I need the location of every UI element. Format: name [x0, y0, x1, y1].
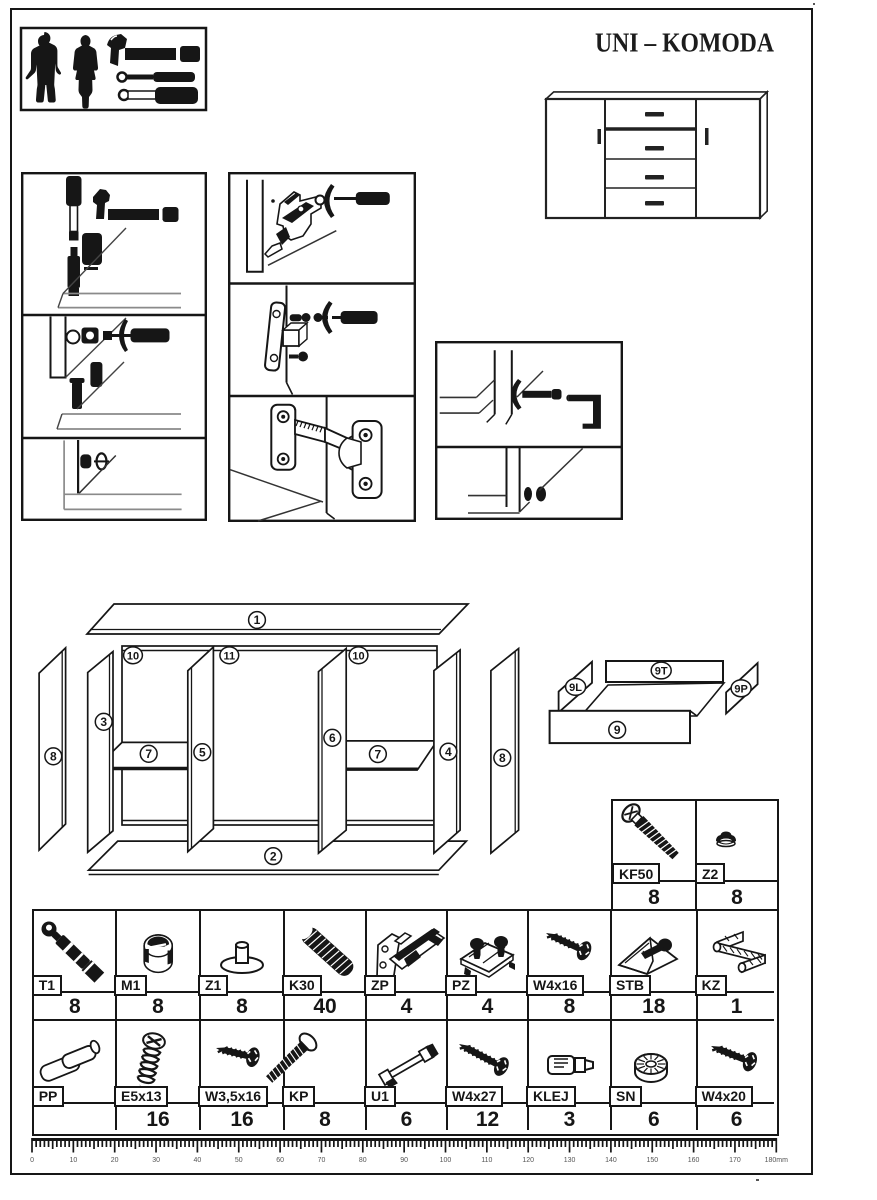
- svg-text:60: 60: [277, 1157, 285, 1164]
- svg-text:180mm: 180mm: [765, 1157, 788, 1164]
- svg-text:30: 30: [153, 1157, 161, 1164]
- svg-text:10: 10: [70, 1157, 78, 1164]
- svg-text:80: 80: [359, 1157, 367, 1164]
- svg-text:3: 3: [100, 715, 107, 729]
- svg-text:7: 7: [375, 747, 382, 761]
- svg-text:50: 50: [235, 1157, 243, 1164]
- svg-text:9: 9: [614, 723, 621, 737]
- svg-text:130: 130: [564, 1157, 576, 1164]
- svg-text:90: 90: [401, 1157, 409, 1164]
- svg-text:9T: 9T: [655, 666, 668, 678]
- svg-text:70: 70: [318, 1157, 326, 1164]
- svg-text:2: 2: [270, 849, 277, 863]
- svg-text:9P: 9P: [734, 684, 747, 696]
- svg-text:5: 5: [199, 745, 206, 759]
- svg-text:140: 140: [605, 1157, 617, 1164]
- svg-text:6: 6: [329, 731, 336, 745]
- svg-text:8: 8: [499, 751, 506, 765]
- svg-text:150: 150: [647, 1157, 659, 1164]
- svg-text:160: 160: [688, 1157, 700, 1164]
- svg-text:10: 10: [127, 651, 139, 663]
- svg-text:10: 10: [352, 651, 364, 663]
- svg-text:1: 1: [254, 613, 261, 627]
- svg-text:100: 100: [440, 1157, 452, 1164]
- svg-text:9L: 9L: [569, 682, 582, 694]
- svg-text:7: 7: [145, 747, 152, 761]
- svg-text:40: 40: [194, 1157, 202, 1164]
- svg-text:110: 110: [482, 1157, 493, 1164]
- svg-text:4: 4: [445, 745, 452, 759]
- svg-text:8: 8: [50, 750, 57, 764]
- svg-text:0: 0: [30, 1157, 34, 1164]
- svg-text:UNI – KOMODA: UNI – KOMODA: [595, 27, 774, 58]
- svg-text:11: 11: [223, 651, 235, 663]
- svg-text:120: 120: [523, 1157, 535, 1164]
- svg-text:170: 170: [729, 1157, 741, 1164]
- svg-text:20: 20: [111, 1157, 119, 1164]
